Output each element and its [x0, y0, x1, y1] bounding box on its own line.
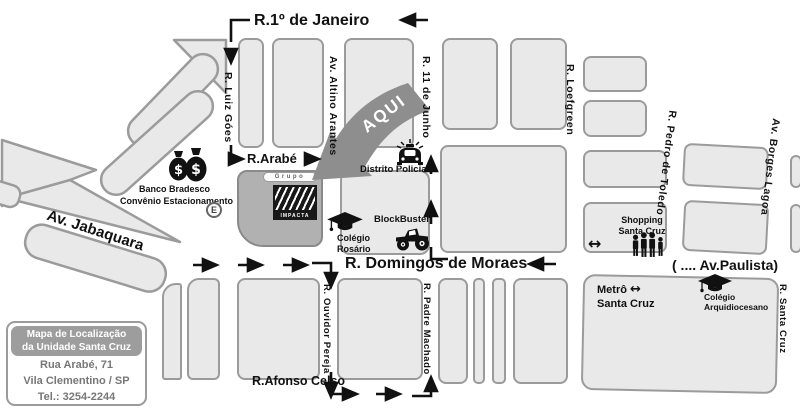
fan-corner-block	[174, 40, 226, 93]
poi-text: Shopping	[612, 215, 672, 226]
map-legend-address: Rua Arabé, 71 Vila Clementino / SP Tel.:…	[11, 358, 142, 406]
impacta-logo-stripes	[273, 185, 317, 212]
city-block	[790, 204, 800, 253]
poi-text: Rosário	[337, 244, 371, 255]
impacta-destination-block: Grupo IMPACTA	[237, 170, 323, 247]
machado-north-arrow	[412, 378, 431, 396]
city-block	[187, 278, 220, 380]
arabe-corner-arrow	[231, 145, 242, 159]
poi-colegio-rosario: Colégio Rosário	[337, 233, 371, 255]
street-label-jabaquara: Av. Jabaquara	[45, 207, 146, 254]
city-block	[438, 278, 468, 384]
street-label-padre-machado: R. Padre Machado	[421, 283, 432, 375]
city-block	[473, 278, 485, 384]
street-label-r1-janeiro: R.1º de Janeiro	[254, 12, 369, 30]
legend-title-line: Mapa de Localização	[11, 328, 142, 341]
city-block	[682, 200, 770, 255]
street-label-arabe: R.Arabé	[247, 151, 297, 166]
impacta-logo: IMPACTA	[273, 185, 317, 220]
vintage-car-icon	[393, 223, 431, 257]
legend-title-line: da Unidade Santa Cruz	[11, 341, 142, 354]
parking-badge: E	[206, 202, 222, 218]
city-block	[510, 38, 567, 130]
city-block	[440, 145, 567, 253]
legend-phone: Tel.: 3254-2244	[11, 390, 142, 406]
poi-text: Santa Cruz	[597, 298, 654, 311]
street-label-paulista: ( .... Av.Paulista)	[672, 257, 778, 273]
city-block	[237, 278, 320, 380]
poi-banco-bradesco: Banco Bradesco	[139, 184, 210, 195]
svg-text:$: $	[174, 163, 183, 178]
map-legend-title: Mapa de Localização da Unidade Santa Cru…	[11, 326, 142, 356]
city-block	[583, 100, 647, 137]
city-block	[337, 278, 423, 380]
map-legend: Mapa de Localização da Unidade Santa Cru…	[6, 321, 147, 406]
street-label-loefgreen: R. Loefgreen	[564, 64, 576, 135]
poi-colegio-arquidiocesano: Colégio Arquidiocesano	[704, 292, 768, 312]
poi-metro-santa-cruz: Metrô ↔ Santa Cruz	[597, 282, 654, 311]
poi-text: Metrô ↔	[597, 282, 654, 298]
poi-distrito-policial: Distrito Policial	[360, 164, 429, 175]
city-block	[442, 38, 498, 130]
poi-text: Colégio	[337, 233, 371, 244]
street-label-domingos: R. Domingos de Moraes	[345, 255, 527, 273]
street-label-altino-arantes: Av. Altino Arantes	[327, 56, 339, 156]
poi-text: Arquidiocesano	[704, 302, 768, 312]
city-block	[492, 278, 506, 384]
city-block	[162, 283, 182, 380]
poi-text: Colégio	[704, 292, 768, 302]
street-label-ouvidor-pereja: R. Ouvidor Pereja	[321, 284, 332, 374]
street-label-afonso-celso: R.Afonso Celso	[252, 374, 345, 388]
city-block	[513, 278, 568, 384]
metro-symbol-icon: ↔	[588, 234, 601, 253]
street-label-luiz-goes: R. Luiz Góes	[222, 72, 234, 143]
people-icon	[630, 230, 666, 263]
city-block	[682, 143, 769, 190]
legend-address-line: Rua Arabé, 71	[11, 358, 142, 374]
city-block	[583, 56, 647, 92]
money-bags-icon: $ $	[160, 144, 208, 189]
city-block	[238, 38, 264, 148]
city-block	[583, 150, 667, 188]
grupo-label: Grupo	[263, 172, 317, 182]
legend-address-line: Vila Clementino / SP	[11, 374, 142, 390]
street-label-santa-cruz: R. Santa Cruz	[777, 284, 788, 354]
city-block	[790, 155, 800, 188]
impacta-logo-caption: IMPACTA	[273, 212, 317, 220]
metro-symbol-icon: ↔	[630, 282, 641, 297]
city-block	[272, 38, 324, 148]
svg-text:$: $	[191, 162, 201, 178]
santa-cruz-location-map: Grupo IMPACTA	[0, 0, 800, 410]
